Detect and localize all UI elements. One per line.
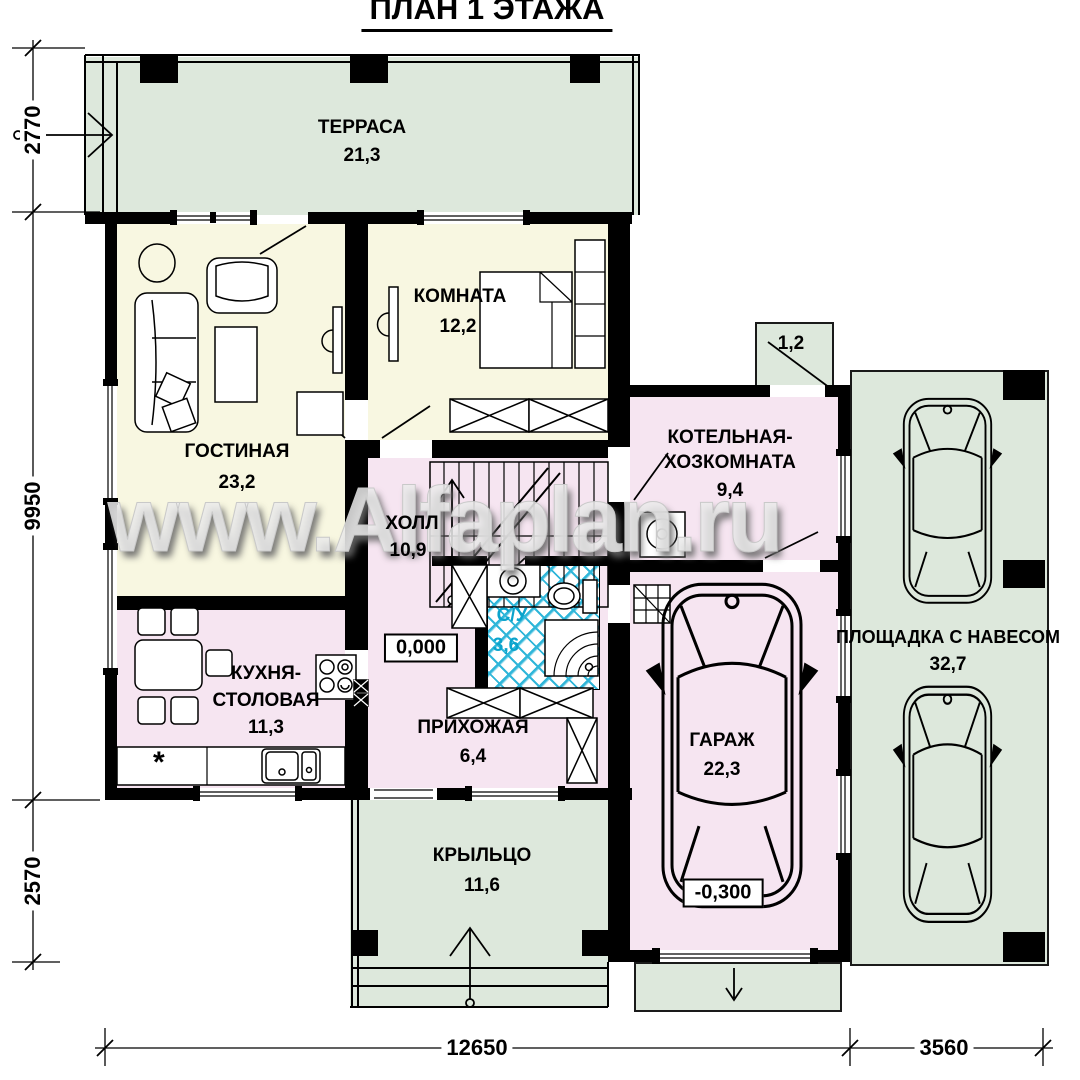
- kitchen-note-symbol: *: [153, 746, 165, 779]
- canopy-area: 32,7: [930, 653, 967, 677]
- boiler-room-area: 9,4: [717, 479, 743, 503]
- terrace-area: 21,3: [344, 144, 381, 168]
- dim-bottom-right: 3560: [915, 1035, 974, 1061]
- window-living-terrace: [170, 210, 257, 225]
- kitchen-sink-icon: [262, 749, 320, 783]
- coffee-table-icon: [215, 327, 257, 402]
- window-garage-right-1: [836, 609, 851, 703]
- shower-icon: [545, 620, 598, 676]
- hall-area: 10,9: [390, 539, 427, 563]
- door-hall-bedroom-leaf: [382, 406, 430, 438]
- tv-panel-living-icon: [322, 307, 342, 373]
- car-canopy-1-icon: [894, 399, 1000, 603]
- dim-bottom-main: 12650: [441, 1035, 512, 1061]
- door-boiler-garage-leaf: [765, 532, 818, 558]
- wc-area: 3,6: [493, 634, 519, 658]
- dim-left-middle: 9950: [20, 477, 46, 536]
- living-room-label: ГОСТИНАЯ: [185, 440, 290, 464]
- boiler-room-label-2: ХОЗКОМНАТА: [664, 451, 796, 475]
- window-bedroom-terrace: [417, 210, 530, 225]
- garage-gate-opening: [652, 948, 818, 964]
- canopy-label: ПЛОЩАДКА С НАВЕСОМ: [836, 626, 1060, 649]
- bedroom-label: КОМНАТА: [414, 285, 507, 309]
- sofa-icon: [135, 293, 198, 432]
- walls: [85, 55, 1045, 962]
- washing-machine-icon: [640, 512, 685, 557]
- plan-linework: *: [0, 0, 1080, 1080]
- window-garage-right-2: [836, 769, 851, 860]
- door-hall-boiler-leaf: [634, 453, 668, 500]
- sink-icon: [500, 568, 526, 594]
- living-room-furniture: [135, 244, 343, 435]
- window-living-left: [103, 379, 118, 505]
- garage-area: 22,3: [704, 758, 741, 782]
- page-title: ПЛАН 1 ЭТАЖА: [361, 0, 612, 32]
- bedroom-shelf-icon: [575, 240, 605, 368]
- plant-icon: [139, 244, 175, 282]
- boiler-room-label-1: КОТЕЛЬНАЯ-: [667, 426, 792, 450]
- driveway-arrow: [726, 968, 742, 1000]
- cabinet-icon: [297, 392, 343, 435]
- door-living-terrace-leaf: [260, 226, 306, 254]
- hall-label: ХОЛЛ: [385, 512, 438, 536]
- dining-table-icon: [135, 640, 202, 690]
- entry-hall-area: 6,4: [460, 745, 486, 769]
- window-entry-bottom: [465, 786, 565, 801]
- dim-left-bottom: 2570: [20, 852, 46, 911]
- terrace-label: ТЕРРАСА: [318, 116, 406, 140]
- garage-level-mark: -0,300: [683, 879, 764, 908]
- bedroom-area: 12,2: [440, 315, 477, 339]
- dim-left-top: 2770: [20, 101, 46, 160]
- floor-plan: * www.Alfaplan.ru ПЛАН 1 ЭТАЖА ТЕРРАСА 2…: [0, 0, 1080, 1080]
- annex-area: 1,2: [778, 332, 804, 356]
- porch-label: КРЫЛЬЦО: [433, 844, 532, 868]
- toilet-icon: [548, 580, 597, 613]
- wc-label: С/У: [497, 604, 528, 628]
- living-room-area: 23,2: [219, 471, 256, 495]
- kitchen-area: 11,3: [248, 716, 284, 740]
- wardrobe-bedroom: [450, 399, 608, 432]
- armchair-icon: [207, 258, 277, 313]
- stove-icon: [316, 655, 356, 699]
- floor-level-mark: 0,000: [384, 634, 458, 663]
- garage-label: ГАРАЖ: [689, 729, 754, 753]
- car-canopy-2-icon: [894, 687, 1000, 922]
- porch-steps: [350, 800, 608, 1007]
- door-annex-opening: [770, 385, 825, 397]
- kitchen-label-2: СТОЛОВАЯ: [213, 689, 320, 713]
- tv-panel-bedroom-icon: [378, 287, 399, 361]
- window-kitchen-left: [103, 543, 118, 675]
- wardrobe-hall: [452, 565, 487, 628]
- entry-hall-label: ПРИХОЖАЯ: [417, 716, 528, 740]
- window-boiler-right: [836, 449, 851, 543]
- window-kitchen-bottom: [193, 786, 302, 801]
- kitchen-label-1: КУХНЯ-: [231, 662, 301, 686]
- porch-area: 11,6: [464, 874, 500, 898]
- dimension-lines: [12, 40, 1053, 1066]
